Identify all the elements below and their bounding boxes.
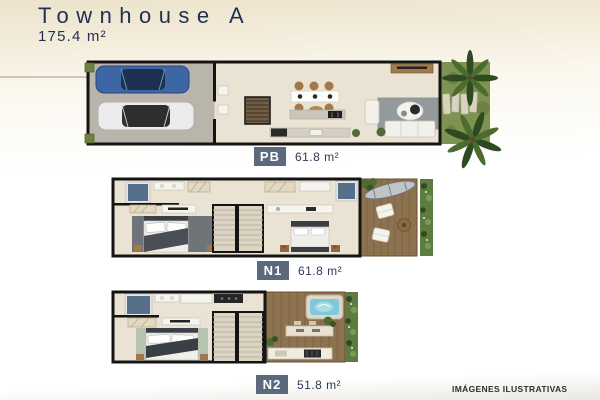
stairs — [245, 97, 270, 124]
n1-floor-plan-drawing — [110, 176, 436, 262]
dresser — [300, 182, 330, 191]
dresser — [162, 318, 200, 325]
shower — [128, 184, 148, 201]
n1-label-row: N1 61.8 m² — [257, 261, 342, 280]
plant — [377, 128, 386, 137]
nightstand — [200, 354, 208, 360]
pb-floor-plan-drawing — [85, 58, 497, 153]
armchair — [365, 100, 379, 124]
car-white — [98, 102, 194, 130]
garage-area — [85, 63, 216, 143]
n2-area: 51.8 m² — [297, 378, 341, 392]
driveway-line — [0, 76, 88, 78]
n1-area: 61.8 m² — [298, 264, 342, 278]
jacuzzi — [306, 295, 343, 319]
page-title: Townhouse A — [38, 3, 251, 29]
bed — [136, 328, 208, 360]
closet — [130, 205, 156, 213]
n2-badge: N2 — [256, 375, 288, 394]
kitchenette — [181, 294, 243, 303]
closet — [188, 182, 210, 192]
pb-badge: PB — [254, 147, 286, 166]
closet — [128, 318, 156, 327]
n2-floor-plan — [110, 290, 360, 368]
planter — [85, 134, 94, 143]
plant — [352, 129, 360, 137]
n2-label-row: N2 51.8 m² — [256, 375, 341, 394]
dresser — [162, 205, 196, 213]
side-table — [398, 219, 411, 232]
disclaimer-text: IMÁGENES ILUSTRATIVAS — [452, 384, 567, 394]
roof-deck — [265, 292, 345, 362]
outdoor-kitchen — [268, 348, 332, 359]
n1-floor-plan — [110, 176, 436, 262]
n2-floor-plan-drawing — [110, 290, 360, 368]
car-blue — [96, 66, 189, 93]
stairs — [213, 312, 263, 362]
pb-label-row: PB 61.8 m² — [254, 147, 339, 166]
planter — [85, 63, 94, 72]
terrace-deck — [360, 177, 417, 256]
pb-area: 61.8 m² — [295, 150, 339, 164]
closet — [265, 182, 295, 192]
nightstand — [134, 245, 142, 251]
n1-badge: N1 — [257, 261, 289, 280]
closet-blue — [336, 181, 357, 201]
hedge — [420, 179, 433, 256]
sofa — [385, 121, 435, 137]
hedge — [345, 292, 358, 362]
pb-floor-plan — [85, 58, 497, 153]
shower — [127, 296, 150, 314]
nightstand — [136, 354, 144, 360]
stairs — [213, 205, 263, 252]
floorplan-sheet: Townhouse A 175.4 m² — [0, 0, 600, 400]
bed — [132, 216, 215, 252]
total-area: 175.4 m² — [38, 28, 107, 45]
dining-table — [291, 82, 339, 115]
